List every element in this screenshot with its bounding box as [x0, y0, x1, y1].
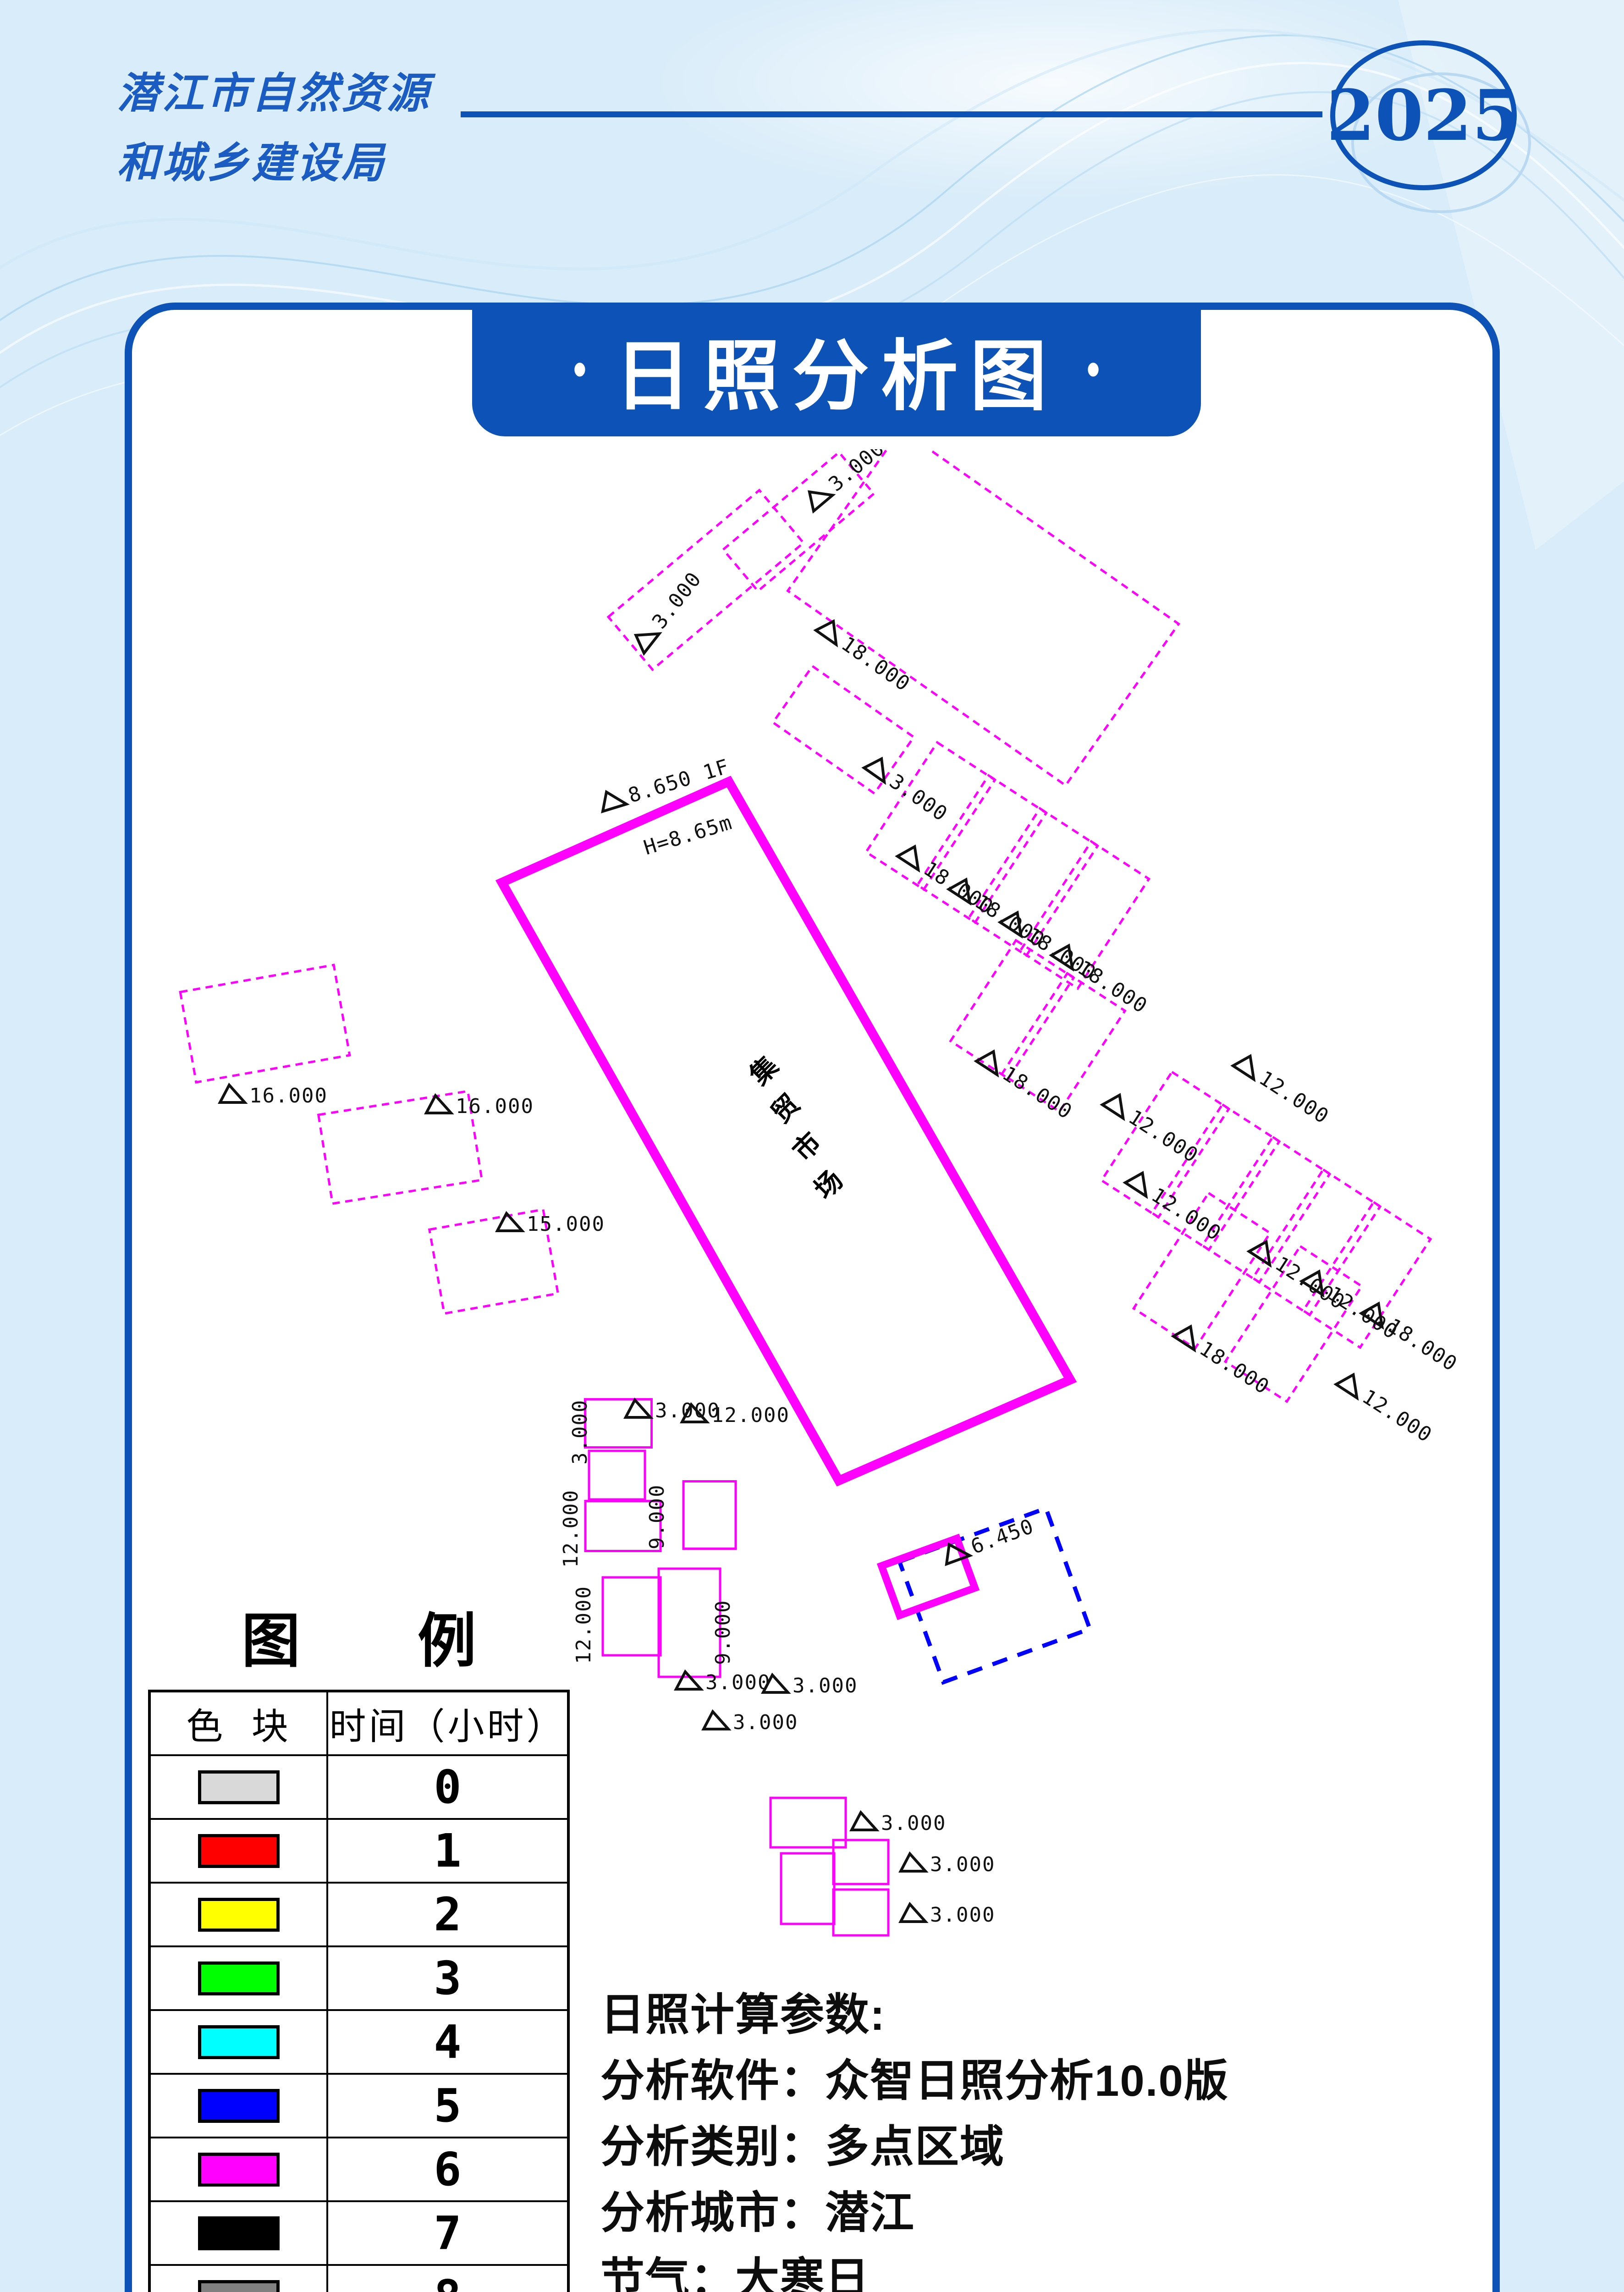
legend-row: 4 — [151, 2009, 567, 2073]
elevation-label: 3.000 — [763, 1674, 858, 1697]
svg-text:3.000: 3.000 — [568, 1399, 592, 1465]
legend-hours-value: 6 — [328, 2138, 567, 2200]
building-outline — [1202, 1137, 1330, 1282]
svg-text:3.000: 3.000 — [930, 1853, 995, 1876]
svg-text:3.000: 3.000 — [733, 1711, 798, 1734]
legend-color-swatch — [198, 2153, 280, 2187]
sunshine-analysis-map: 集贸市场3.0003.00018.0003.00018.00018.00018.… — [151, 449, 1481, 1962]
svg-text:18.000: 18.000 — [1383, 1314, 1462, 1376]
svg-text:9.000: 9.000 — [711, 1600, 735, 1665]
svg-text:18.000: 18.000 — [998, 1062, 1077, 1124]
building-outline — [683, 1482, 736, 1549]
market-building-outline — [502, 782, 1070, 1481]
svg-text:3.000: 3.000 — [793, 1674, 858, 1697]
legend-hours-value: 4 — [328, 2011, 567, 2073]
legend-row: 7 — [151, 2200, 567, 2264]
calculation-parameters: 日照计算参数:分析软件：众智日照分析10.0版分析类别：多点区域分析城市：潜江节… — [600, 1982, 1517, 2292]
legend-hours-value: 5 — [328, 2075, 567, 2137]
svg-text:12.000: 12.000 — [1255, 1066, 1333, 1129]
banner-dot-right: • — [1086, 340, 1100, 399]
elevation-label: 3.000 — [704, 1711, 798, 1734]
param-line: 日照计算参数: — [600, 1982, 1517, 2048]
elevation-label: 16.000 — [220, 1084, 328, 1107]
svg-text:6.450: 6.450 — [968, 1515, 1037, 1559]
elevation-label: 12.000 — [1230, 1050, 1333, 1129]
elevation-label: 3.000 — [676, 1671, 771, 1694]
elevation-label: 18.000 — [1171, 1321, 1274, 1399]
year-text: 2025 — [1327, 74, 1520, 156]
org-name-line2: 和城乡建设局 — [117, 128, 431, 198]
elevation-label: 3.000 — [629, 567, 706, 656]
svg-text:12.000: 12.000 — [559, 1489, 583, 1568]
title-banner: • 日照分析图 • — [472, 303, 1201, 436]
svg-text:3.000: 3.000 — [930, 1903, 995, 1927]
elevation-label: 16.000 — [426, 1095, 534, 1118]
svg-text:15.000: 15.000 — [527, 1212, 605, 1236]
org-name: 潜江市自然资源 和城乡建设局 — [117, 59, 431, 198]
legend-hours-value: 8 — [328, 2266, 567, 2292]
svg-text:12.000: 12.000 — [572, 1586, 595, 1664]
elevation-label: 12.000 — [1333, 1369, 1437, 1447]
elevation-label: 18.000 — [813, 615, 915, 696]
param-line: 分析城市：潜江 — [600, 2180, 1517, 2246]
svg-text:3.000: 3.000 — [881, 1812, 946, 1835]
elevation-label: 12.000 — [572, 1586, 595, 1664]
elevation-label: 3.000 — [626, 1399, 720, 1422]
legend-hours-value: 7 — [328, 2202, 567, 2264]
building-outline — [608, 490, 804, 669]
elevation-label: 3.000 — [901, 1903, 995, 1927]
svg-text:12.000: 12.000 — [1358, 1385, 1437, 1447]
market-name-char: 市 — [787, 1127, 827, 1167]
building-outline — [659, 1569, 720, 1677]
legend-color-swatch — [198, 2280, 280, 2292]
legend-row: 8 — [151, 2264, 567, 2292]
header-divider-line — [461, 111, 1322, 117]
market-name-char: 集 — [744, 1051, 784, 1091]
svg-text:3.000: 3.000 — [648, 567, 706, 634]
param-line: 分析类别：多点区域 — [600, 2114, 1517, 2180]
elevation-label: 3.000 — [568, 1399, 592, 1465]
page-title: 日照分析图 — [614, 314, 1059, 425]
elevation-label: 9.000 — [711, 1600, 735, 1665]
building-outline — [589, 1451, 645, 1499]
market-name-char: 贸 — [765, 1089, 805, 1129]
svg-text:18.000: 18.000 — [837, 632, 914, 696]
elevation-label: 12.000 — [1100, 1089, 1203, 1168]
svg-text:3.000: 3.000 — [705, 1671, 771, 1694]
svg-text:9.000: 9.000 — [645, 1484, 669, 1549]
org-name-line1: 潜江市自然资源 — [117, 59, 431, 128]
market-name-char: 场 — [809, 1165, 848, 1205]
analysis-card: • 日照分析图 • 集贸市场3.0003.00018.0003.00018.00… — [125, 303, 1500, 2292]
legend-color-swatch — [198, 1961, 280, 1995]
svg-text:12.000: 12.000 — [1124, 1105, 1203, 1168]
year-badge: 2025 — [1330, 40, 1517, 190]
svg-text:12.000: 12.000 — [711, 1404, 790, 1427]
building-outline — [180, 965, 350, 1082]
svg-text:16.000: 16.000 — [456, 1095, 534, 1118]
svg-text:16.000: 16.000 — [249, 1084, 328, 1107]
elevation-label: 3.000 — [852, 1812, 946, 1835]
elevation-label: 12.000 — [1123, 1167, 1226, 1245]
elevation-label: 18.000 — [974, 1046, 1077, 1124]
building-outline — [603, 1577, 661, 1655]
svg-text:18.000: 18.000 — [1073, 956, 1152, 1018]
legend-row: 6 — [151, 2137, 567, 2200]
legend-color-swatch — [198, 2025, 280, 2059]
elevation-label: 9.000 — [645, 1484, 669, 1549]
legend-color-swatch — [198, 2089, 280, 2123]
banner-dot-left: • — [573, 340, 587, 399]
building-outline — [788, 449, 1179, 785]
building-outline — [781, 1853, 834, 1924]
svg-text:3.000: 3.000 — [885, 770, 952, 826]
param-line: 节气：大寒日 — [600, 2246, 1517, 2292]
legend-color-swatch — [198, 2216, 280, 2250]
elevation-label: 15.000 — [497, 1212, 605, 1236]
legend-row: 5 — [151, 2073, 567, 2137]
building-outline — [833, 1890, 888, 1935]
elevation-label: 12.000 — [559, 1489, 583, 1568]
elevation-label: 3.000 — [901, 1853, 995, 1876]
elevation-label: 3.000 — [861, 753, 952, 826]
param-line: 分析软件：众智日照分析10.0版 — [600, 2048, 1517, 2114]
